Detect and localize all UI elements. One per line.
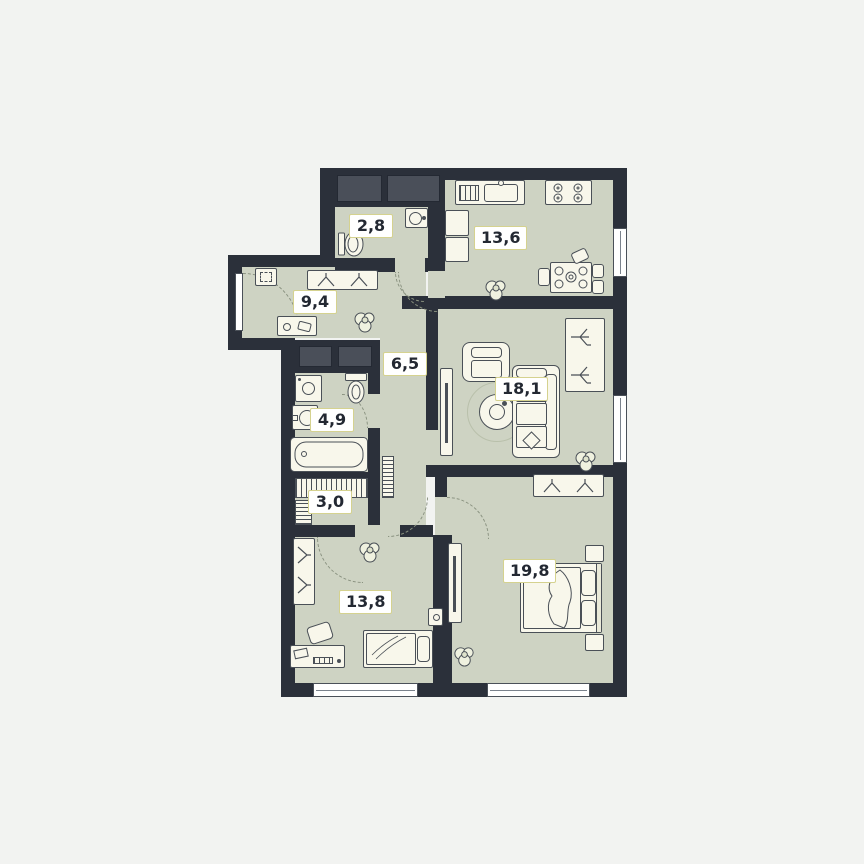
window-kitchen [613, 228, 627, 277]
nightstand [585, 545, 604, 562]
kitchen-sink-counter [455, 180, 525, 205]
nightstand-second [428, 608, 443, 626]
shaft-mid-2 [338, 346, 372, 367]
nightstand [585, 634, 604, 651]
area-label-bathroom: 4,9 [310, 408, 354, 432]
washing-machine [295, 375, 322, 402]
wall-bedroom-main-left [435, 477, 447, 497]
armchair [462, 342, 510, 382]
plant-living [573, 447, 599, 473]
entrance-door [235, 273, 243, 331]
area-label-kitchen: 13,6 [474, 226, 527, 250]
floor-plan: 2,8 13,6 9,4 6,5 4,9 3,0 18,1 19,8 13,8 [228, 168, 628, 698]
plant-bedroom-main [452, 643, 477, 668]
opening-wc-door [395, 258, 425, 272]
area-label-bedroom-main: 19,8 [503, 559, 556, 583]
wall-left-lower [281, 340, 295, 683]
dresser-bedroom-main [448, 543, 462, 623]
bath-toilet [345, 373, 367, 405]
plant-bedroom-second [357, 538, 383, 564]
stove [545, 180, 592, 205]
area-label-storage: 3,0 [308, 490, 352, 514]
area-label-living: 18,1 [495, 377, 548, 401]
opening-bedroom-main-door [435, 497, 447, 535]
area-label-corridor: 6,5 [383, 352, 427, 376]
radiator [382, 456, 394, 498]
single-bed [363, 630, 433, 668]
opening-living-door [426, 430, 438, 465]
window-living [613, 395, 627, 463]
dining-chair [538, 268, 550, 286]
bedroom-second-wardrobe [293, 538, 315, 605]
hallway-bench [277, 316, 317, 336]
hallway-wardrobe [307, 270, 378, 290]
fridge [445, 210, 469, 236]
bedroom-main-wardrobe [533, 474, 604, 497]
wall-corridor-living [426, 309, 438, 430]
shaft-top-1 [337, 175, 382, 202]
living-wardrobe [565, 318, 605, 392]
plant-hallway [352, 308, 378, 334]
window-bedroom-second [313, 683, 418, 697]
wall-top-kitchen [445, 168, 627, 180]
bathtub [290, 437, 368, 472]
wall-hall-top [228, 255, 335, 267]
area-label-wc: 2,8 [349, 214, 393, 238]
wc-hand-sink [405, 208, 428, 228]
plant-kitchen [483, 276, 509, 302]
shaft-mid-1 [299, 346, 332, 367]
electrical-panel [255, 268, 277, 286]
tv-stand-living [440, 368, 453, 456]
dining-chair [592, 264, 604, 278]
wall-bedroom-second-top-left [295, 525, 355, 537]
shaft-top-2 [387, 175, 440, 202]
opening-bathroom-door [368, 394, 380, 428]
dining-chair [592, 280, 604, 294]
area-label-hallway: 9,4 [293, 290, 337, 314]
area-label-bedroom-second: 13,8 [339, 590, 392, 614]
wall-wc-bottom-right [425, 258, 445, 272]
dining-table [550, 262, 592, 293]
kitchen-cabinet [445, 237, 469, 262]
wall-bath-corridor-lower [368, 428, 380, 537]
desk [290, 645, 345, 668]
wall-wc-left [320, 168, 335, 267]
window-bedroom-main [487, 683, 590, 697]
